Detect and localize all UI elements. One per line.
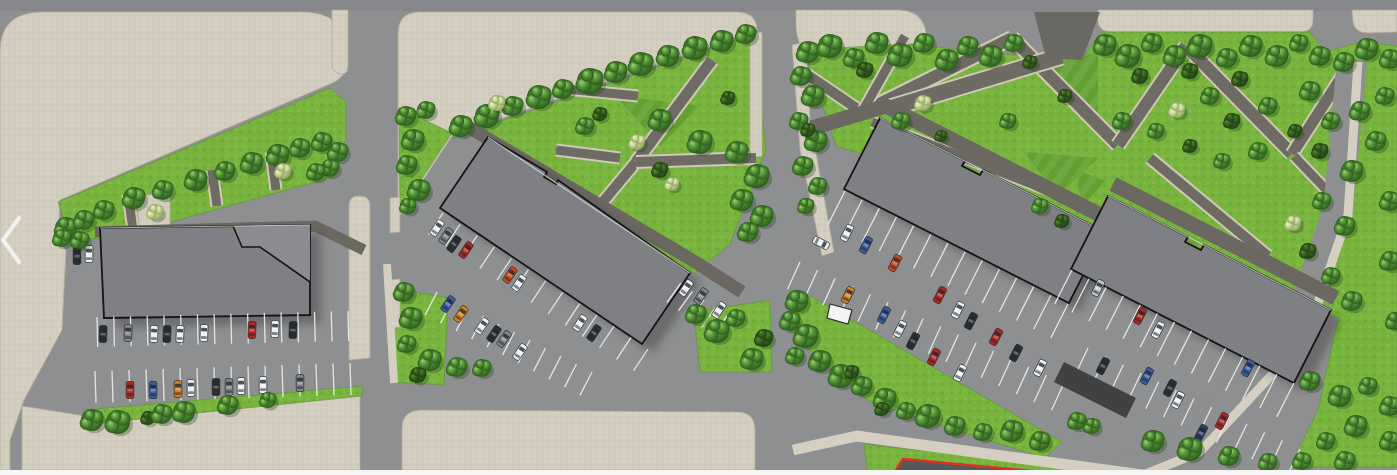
parked-car (259, 377, 267, 394)
site-plan-viewer (0, 0, 1397, 475)
parked-car (200, 324, 208, 341)
parked-car (212, 379, 220, 396)
building-A (100, 225, 310, 318)
parked-car (237, 378, 245, 395)
carousel-prev-button[interactable] (0, 210, 27, 270)
parked-car (296, 375, 304, 392)
parked-car (126, 382, 134, 399)
parked-car (225, 379, 233, 396)
parked-car (176, 325, 184, 342)
parked-car (99, 325, 107, 342)
parked-car (174, 381, 182, 398)
parked-car (289, 321, 297, 338)
page-background-strip (0, 470, 1397, 475)
parked-car (149, 382, 157, 399)
parked-car (187, 380, 195, 397)
parked-car (163, 325, 171, 342)
parked-car (271, 320, 279, 337)
chevron-left-icon (0, 210, 27, 270)
parked-car (124, 324, 132, 341)
parked-car (150, 325, 158, 342)
site-plan-rendering (0, 0, 1397, 475)
parked-car (248, 321, 256, 338)
